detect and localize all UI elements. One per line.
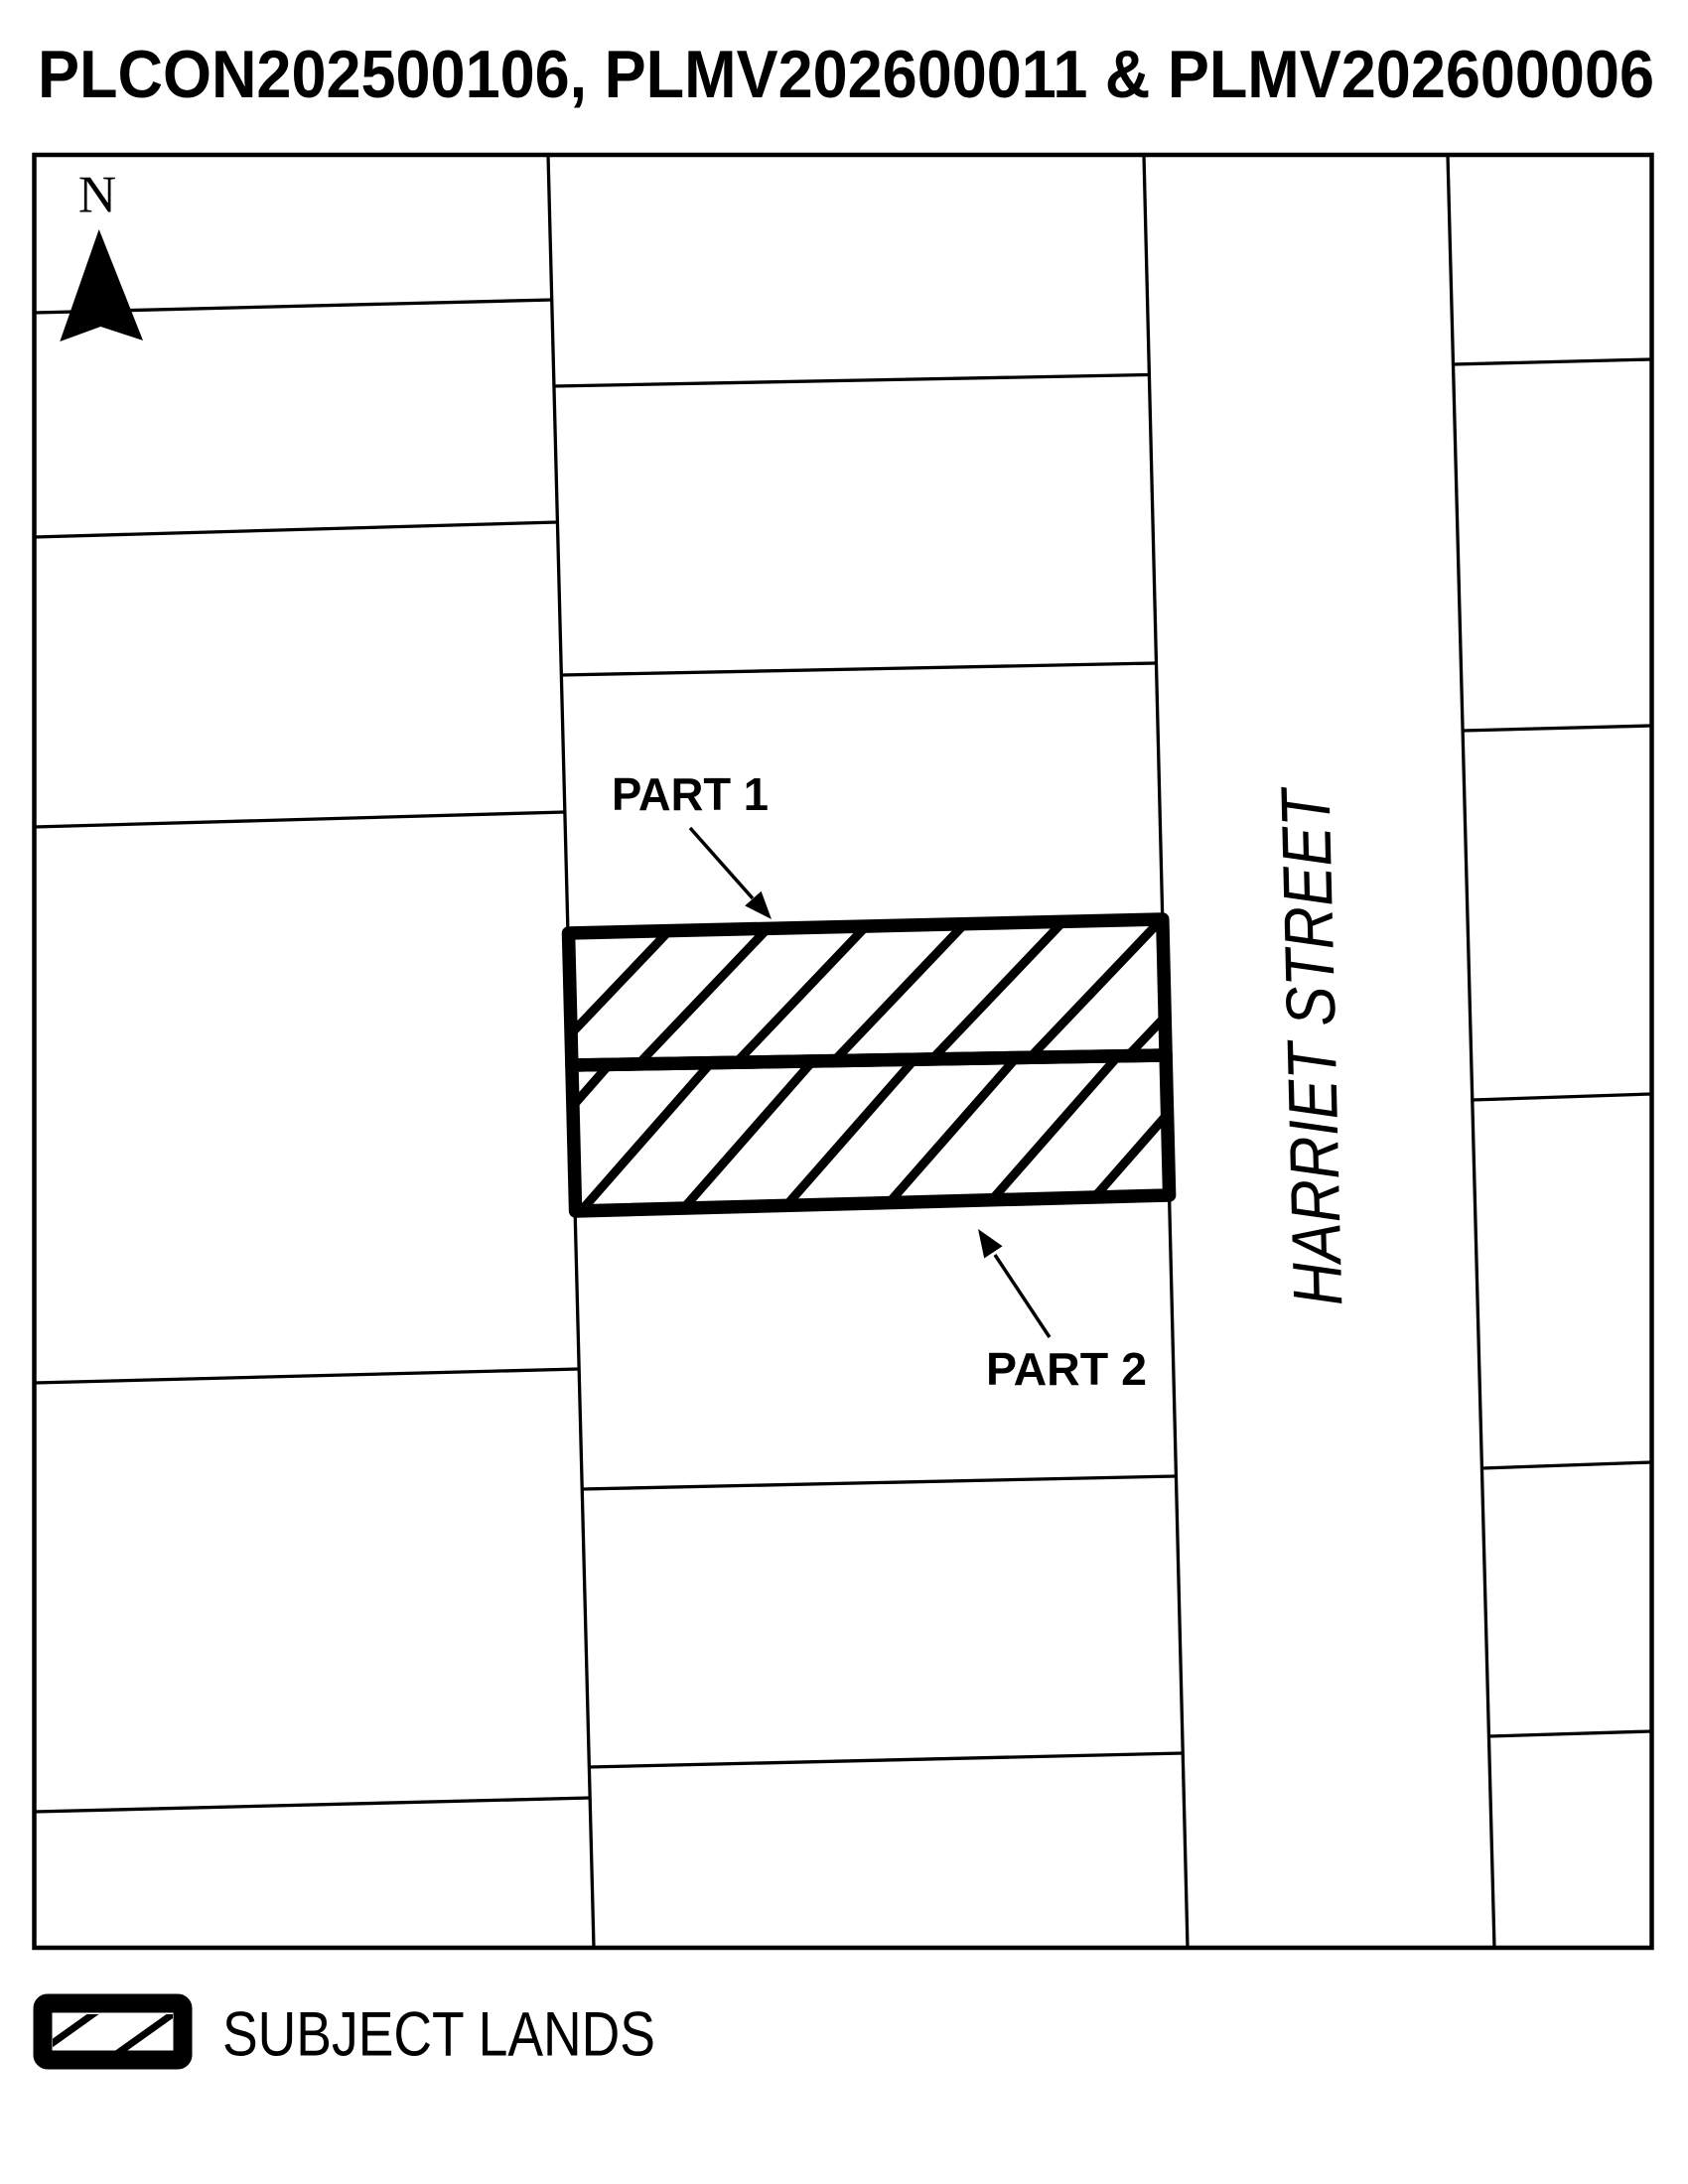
svg-text:N: N [78,167,116,224]
svg-text:PART 1: PART 1 [612,768,769,820]
svg-text:PLCON202500106, PLMV202600011: PLCON202500106, PLMV202600011 & PLMV2026… [38,37,1654,112]
svg-text:PART 2: PART 2 [986,1343,1147,1395]
svg-text:SUBJECT LANDS: SUBJECT LANDS [222,2000,655,2070]
svg-text:HARRIET STREET: HARRIET STREET [1267,785,1357,1306]
